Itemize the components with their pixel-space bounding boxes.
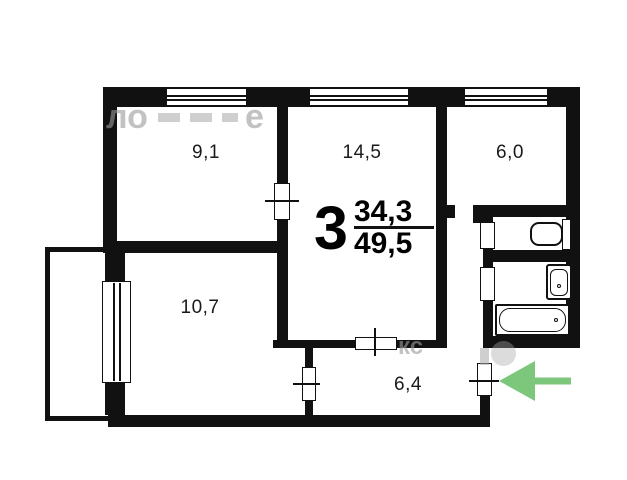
- toilet-cistern-icon: [562, 219, 571, 250]
- wall-bedroom1-living-lower: [277, 220, 288, 340]
- room-label-hallway: 6,4: [394, 374, 422, 396]
- watermark-dash: [190, 113, 212, 122]
- wall-bedroom1-bedroom2: [103, 241, 288, 253]
- balcony-wall-top: [45, 247, 108, 252]
- wall-bedroom2-hallway-lower: [305, 400, 313, 415]
- watermark-dash: [222, 113, 238, 122]
- balcony-door-window-unit: [102, 281, 131, 383]
- room-label-living-room: 14,5: [343, 142, 382, 164]
- door-tick: [374, 328, 376, 356]
- wall-outer-bottom: [108, 415, 490, 427]
- sink-basin-icon: [550, 269, 568, 296]
- room-label-kitchen: 6,0: [496, 142, 524, 164]
- apartment-summary: 3 34,3 49,5: [314, 198, 434, 257]
- window-bedroom-1: [167, 89, 246, 105]
- watermark-text-top-2: е: [245, 98, 264, 137]
- window-pane-line: [465, 95, 547, 97]
- wall-hallway-right-lower: [480, 396, 490, 415]
- watermark-blob: [491, 341, 516, 366]
- wall-living-right: [436, 107, 447, 348]
- room-label-bedroom-2: 10,7: [181, 297, 220, 319]
- balcony-unit-line: [119, 283, 121, 381]
- watermark-bar: [480, 348, 489, 365]
- wall-balcony-upper: [105, 252, 125, 282]
- wall-bath-left-lower: [483, 300, 493, 336]
- wall-kitchen-bottom: [473, 205, 580, 217]
- room-label-bedroom-1: 9,1: [192, 142, 220, 164]
- watermark-text-top: ло: [106, 98, 148, 137]
- balcony-wall-left: [45, 247, 50, 421]
- area-fraction: 34,3 49,5: [354, 198, 434, 257]
- total-area-value: 49,5: [354, 229, 434, 257]
- toilet-icon: [530, 222, 563, 246]
- door-living-hallway: [355, 337, 397, 350]
- wall-living-bottom-left: [273, 340, 355, 348]
- wall-balcony-lower: [105, 382, 125, 415]
- floor-plan: 9,1 14,5 6,0 10,7 6,4 3 34,3 49,5 ло е к…: [0, 0, 627, 480]
- wall-wc-bath-divider: [483, 250, 580, 262]
- watermark-text-bottom: кс: [398, 333, 423, 361]
- balcony-wall-bottom: [45, 416, 108, 421]
- window-pane-line: [465, 99, 547, 101]
- watermark-dash: [158, 113, 180, 122]
- balcony-unit-line: [113, 283, 115, 381]
- wall-kitchen-door-stub: [436, 205, 455, 218]
- door-tick: [293, 383, 320, 385]
- window-kitchen: [465, 89, 547, 105]
- window-pane-line: [310, 99, 408, 101]
- living-area-value: 34,3: [354, 198, 434, 229]
- door-bathroom: [480, 267, 495, 301]
- window-pane-line: [310, 95, 408, 97]
- door-tick: [265, 200, 299, 202]
- wall-bedroom1-living-upper: [277, 107, 288, 183]
- window-pane-line: [167, 99, 246, 101]
- rooms-count: 3: [314, 203, 347, 253]
- bathtub-drain-icon: [554, 318, 558, 322]
- window-living-room: [310, 89, 408, 105]
- wall-bedroom2-hallway-upper: [305, 348, 313, 368]
- door-wc: [480, 222, 495, 249]
- window-pane-line: [167, 95, 246, 97]
- sink-drain-icon: [557, 284, 561, 288]
